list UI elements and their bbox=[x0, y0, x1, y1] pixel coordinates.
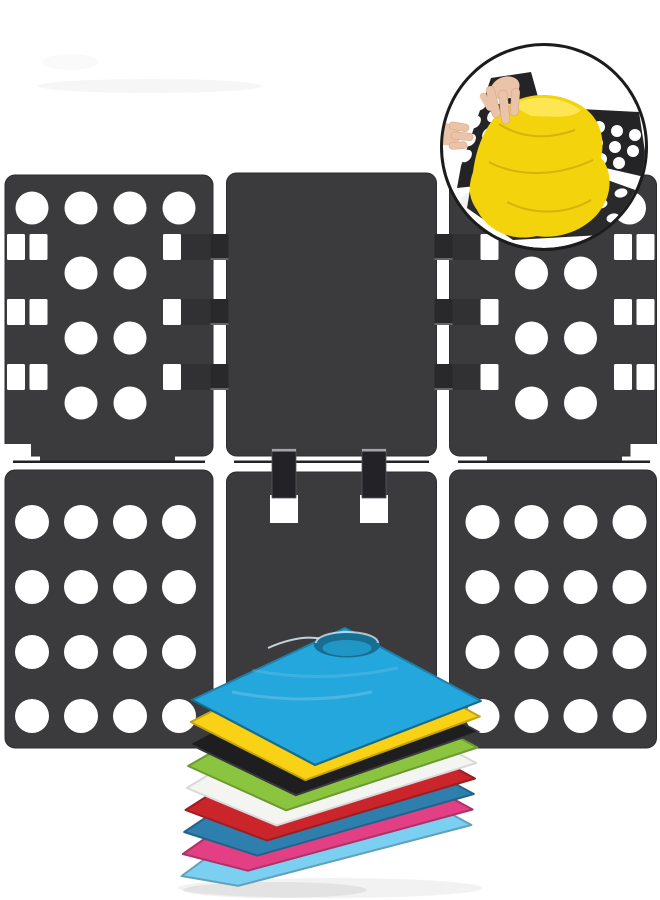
panel-hole bbox=[613, 635, 647, 669]
panel-hole bbox=[113, 505, 147, 539]
hinge-highlight bbox=[211, 388, 229, 390]
panel-hole bbox=[162, 635, 196, 669]
hinge-highlight bbox=[211, 258, 229, 260]
panel-hole bbox=[114, 192, 147, 225]
panel-hole bbox=[64, 570, 98, 604]
inset-hole bbox=[613, 157, 625, 169]
panel-slot bbox=[614, 234, 632, 260]
panel-slot bbox=[637, 234, 655, 260]
panel-hole bbox=[163, 192, 196, 225]
hinge-root bbox=[181, 234, 213, 260]
inset-hole bbox=[627, 145, 639, 157]
hinge-highlight bbox=[211, 323, 229, 325]
panel-hole bbox=[64, 505, 98, 539]
hand-finger bbox=[510, 88, 520, 116]
panel-slot bbox=[30, 364, 48, 390]
panel-slot bbox=[481, 364, 499, 390]
panel-hole bbox=[64, 635, 98, 669]
panel-slot bbox=[637, 364, 655, 390]
panel-hole bbox=[466, 570, 500, 604]
panel-hole bbox=[466, 505, 500, 539]
panel-hole bbox=[564, 505, 598, 539]
hinge-bridge bbox=[435, 299, 453, 325]
panel-hole bbox=[515, 322, 548, 355]
hook-highlight bbox=[362, 449, 386, 452]
panel-corner-notch bbox=[631, 444, 658, 457]
panel-hole bbox=[515, 635, 549, 669]
smudge bbox=[38, 79, 262, 93]
stack-shadow bbox=[183, 882, 367, 898]
hinge-bridge bbox=[435, 234, 453, 260]
panel-hole bbox=[613, 699, 647, 733]
top-shirt-collar-inner bbox=[323, 640, 372, 656]
hand-finger bbox=[449, 142, 467, 150]
inset-hole bbox=[611, 125, 623, 137]
panel-hole bbox=[515, 505, 549, 539]
hinge-root bbox=[181, 364, 213, 390]
panel-hole bbox=[65, 192, 98, 225]
panel-slot bbox=[7, 299, 25, 325]
panel-hole bbox=[515, 570, 549, 604]
product-photo-canvas bbox=[0, 0, 660, 900]
hinge-bridge bbox=[211, 234, 229, 260]
panel-hole bbox=[466, 635, 500, 669]
hook-slot bbox=[270, 495, 298, 523]
hinge-bridge bbox=[211, 299, 229, 325]
panel-hole bbox=[113, 699, 147, 733]
hook-slot bbox=[360, 495, 388, 523]
panel-slot bbox=[163, 234, 181, 260]
fold-hook bbox=[362, 449, 386, 498]
hook-highlight bbox=[272, 449, 296, 452]
panel-hole bbox=[613, 570, 647, 604]
hinge-highlight bbox=[435, 388, 453, 390]
fold-hook bbox=[272, 449, 296, 498]
panel-hole bbox=[564, 635, 598, 669]
panel-slot bbox=[7, 364, 25, 390]
panel-hole bbox=[613, 505, 647, 539]
hand-left bbox=[427, 119, 473, 149]
panel-hole bbox=[564, 699, 598, 733]
panel-hole bbox=[113, 635, 147, 669]
panel-hole bbox=[16, 192, 49, 225]
fold-line bbox=[13, 461, 205, 464]
hinge-root bbox=[450, 299, 481, 325]
panel-hole bbox=[564, 322, 597, 355]
inset-hole bbox=[609, 141, 621, 153]
panel-hole bbox=[114, 257, 147, 290]
hinge-highlight bbox=[435, 323, 453, 325]
panel-hole bbox=[15, 505, 49, 539]
panel-hole bbox=[564, 257, 597, 290]
panel-hole bbox=[515, 699, 549, 733]
panel-slot bbox=[637, 299, 655, 325]
background-smudge bbox=[38, 54, 262, 93]
panel-hole bbox=[15, 570, 49, 604]
panel-hole bbox=[162, 699, 196, 733]
panel-hole bbox=[65, 387, 98, 420]
fold-line bbox=[458, 461, 650, 464]
panel-hole bbox=[162, 505, 196, 539]
hand-finger bbox=[451, 132, 474, 141]
hinge-root bbox=[450, 364, 481, 390]
hinge-highlight bbox=[435, 258, 453, 260]
smudge bbox=[42, 54, 98, 70]
panel-hole bbox=[515, 257, 548, 290]
panel-hole bbox=[564, 570, 598, 604]
panel-hole bbox=[114, 387, 147, 420]
panel-slot bbox=[7, 234, 25, 260]
fold-line bbox=[234, 461, 429, 464]
panel-top-center bbox=[227, 173, 437, 456]
panel-slot bbox=[163, 364, 181, 390]
hinge-bridge bbox=[435, 364, 453, 390]
panel-hole bbox=[162, 570, 196, 604]
panel-hole bbox=[65, 322, 98, 355]
inset-hole bbox=[629, 129, 641, 141]
panel-corner-notch bbox=[4, 444, 31, 457]
panel-slot bbox=[30, 234, 48, 260]
panel-hole bbox=[64, 699, 98, 733]
panel-hole bbox=[15, 699, 49, 733]
hinge-root bbox=[450, 234, 481, 260]
hinge-root bbox=[181, 299, 213, 325]
hinge-bridge bbox=[211, 364, 229, 390]
panel-slot bbox=[481, 299, 499, 325]
panel-slot bbox=[614, 299, 632, 325]
panel-slot bbox=[163, 299, 181, 325]
panel-hole bbox=[113, 570, 147, 604]
panel-hole bbox=[65, 257, 98, 290]
panel-hole bbox=[564, 387, 597, 420]
product-scene bbox=[0, 0, 660, 900]
panel-hole bbox=[515, 387, 548, 420]
panel-slot bbox=[614, 364, 632, 390]
panel-hole bbox=[114, 322, 147, 355]
panel-hole bbox=[15, 635, 49, 669]
panel-slot bbox=[30, 299, 48, 325]
